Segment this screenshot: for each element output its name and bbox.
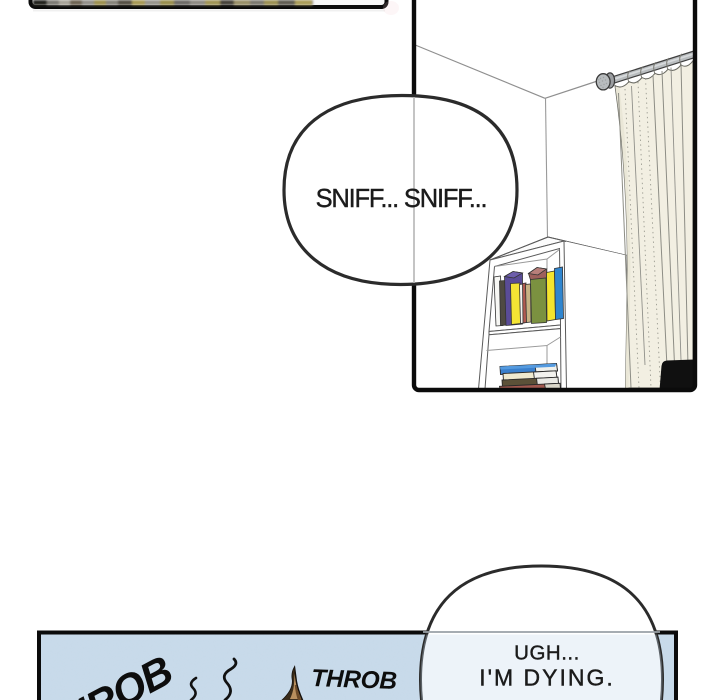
svg-text:I'M DYING.: I'M DYING. [479,665,615,691]
svg-text:SNIFF... SNIFF...: SNIFF... SNIFF... [316,185,487,213]
svg-text:THROB: THROB [311,665,397,695]
svg-text:UGH...: UGH... [514,642,580,665]
